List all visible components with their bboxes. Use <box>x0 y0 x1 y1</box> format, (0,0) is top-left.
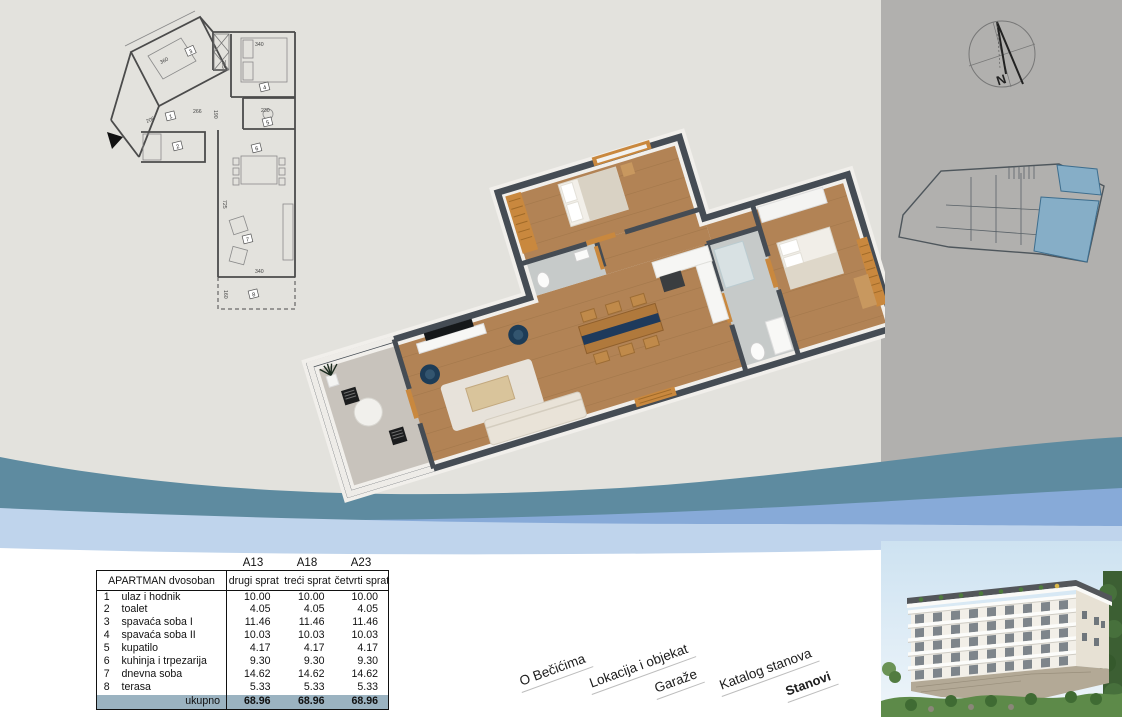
table-row: 1ulaz i hodnik10.0010.0010.00 <box>97 591 389 604</box>
dim-label: 190 <box>212 110 218 119</box>
row-number: 7 <box>97 669 117 682</box>
total-value: 68.96 <box>335 695 389 710</box>
row-number: 1 <box>97 591 117 604</box>
dim-label: 230 <box>261 108 270 114</box>
area-value: 4.17 <box>335 643 389 656</box>
room-name: kuhinja i trpezarija <box>117 656 227 669</box>
table-row: 5kupatilo4.174.174.17 <box>97 643 389 656</box>
area-value: 10.00 <box>335 591 389 604</box>
total-label: ukupno <box>117 695 227 710</box>
unit-id-row: A13 A18 A23 <box>226 557 388 569</box>
unit-id: A18 <box>280 557 334 569</box>
room-name: ulaz i hodnik <box>117 591 227 604</box>
table-total-row: ukupno68.9668.9668.96 <box>97 695 389 710</box>
area-value: 14.62 <box>335 669 389 682</box>
area-value: 4.17 <box>227 643 281 656</box>
area-value: 4.05 <box>227 604 281 617</box>
dim-label: 160 <box>222 290 228 299</box>
area-value: 10.03 <box>335 630 389 643</box>
room-name: spavaća soba I <box>117 617 227 630</box>
plan2d-bed1 <box>148 38 196 79</box>
table-row: 4spavaća soba II10.0310.0310.03 <box>97 630 389 643</box>
area-value: 4.05 <box>335 604 389 617</box>
area-value: 14.62 <box>227 669 281 682</box>
dim-label: 340 <box>255 269 264 275</box>
floor-label: drugi sprat <box>227 571 281 591</box>
table-row: 2toalet4.054.054.05 <box>97 604 389 617</box>
area-value: 5.33 <box>227 682 281 695</box>
entrance-arrow-icon <box>107 132 123 149</box>
dim-label: 285 <box>220 60 226 69</box>
room-tag: 7 <box>242 234 253 244</box>
table-header-row: APARTMAN dvosoban drugi sprat treći spra… <box>97 571 389 591</box>
area-table-body: 1ulaz i hodnik10.0010.0010.002toalet4.05… <box>97 591 389 710</box>
area-value: 9.30 <box>227 656 281 669</box>
floor-label: četvrti sprat <box>335 571 389 591</box>
row-number: 6 <box>97 656 117 669</box>
area-value: 5.33 <box>335 682 389 695</box>
table-row: 3spavaća soba I11.4611.4611.46 <box>97 617 389 630</box>
area-value: 4.05 <box>281 604 335 617</box>
floor-label: treći sprat <box>281 571 335 591</box>
compass: N <box>962 8 1044 98</box>
area-value: 10.00 <box>227 591 281 604</box>
room-name: terasa <box>117 682 227 695</box>
room-name: toalet <box>117 604 227 617</box>
total-value: 68.96 <box>227 695 281 710</box>
row-number: 2 <box>97 604 117 617</box>
area-value: 14.62 <box>281 669 335 682</box>
room-tag: 6 <box>251 143 262 153</box>
area-value: 9.30 <box>281 656 335 669</box>
area-value: 10.03 <box>227 630 281 643</box>
dim-label: 360 <box>159 56 170 65</box>
building-key-plan <box>891 157 1119 283</box>
area-value: 11.46 <box>335 617 389 630</box>
page: 360 340 285 266 190 206 230 725 340 160 … <box>0 0 1122 717</box>
row-number: 4 <box>97 630 117 643</box>
area-value: 11.46 <box>281 617 335 630</box>
table-row: 6kuhinja i trpezarija9.309.309.30 <box>97 656 389 669</box>
room-tag: 1 <box>165 111 176 121</box>
unit-id: A13 <box>226 557 280 569</box>
table-row: 8terasa5.335.335.33 <box>97 682 389 695</box>
total-value: 68.96 <box>281 695 335 710</box>
dim-label: 266 <box>193 109 202 115</box>
room-name: dnevna soba <box>117 669 227 682</box>
room-tag: 2 <box>172 141 183 151</box>
plan2d-bed2 <box>241 38 287 82</box>
area-value: 11.46 <box>227 617 281 630</box>
keyplan-stairs <box>1009 166 1034 179</box>
floor-plan-3d <box>270 118 885 543</box>
area-value: 10.00 <box>281 591 335 604</box>
apartment-area-table: A13 A18 A23 APARTMAN dvosoban drugi spra… <box>96 557 388 710</box>
row-number: 8 <box>97 682 117 695</box>
room-tag: 8 <box>248 289 259 299</box>
dim-label: 725 <box>221 200 227 209</box>
unit-id: A23 <box>334 557 388 569</box>
area-value: 5.33 <box>281 682 335 695</box>
row-number: 3 <box>97 617 117 630</box>
dim-label: 340 <box>255 42 264 48</box>
area-value: 9.30 <box>335 656 389 669</box>
table-header-label: APARTMAN dvosoban <box>97 571 227 591</box>
area-table: APARTMAN dvosoban drugi sprat treći spra… <box>96 570 389 710</box>
building-photo <box>881 541 1122 717</box>
room-name: kupatilo <box>117 643 227 656</box>
table-row: 7dnevna soba14.6214.6214.62 <box>97 669 389 682</box>
room-tag: 4 <box>259 82 270 92</box>
area-value: 10.03 <box>281 630 335 643</box>
room-name: spavaća soba II <box>117 630 227 643</box>
area-value: 4.17 <box>281 643 335 656</box>
row-number: 5 <box>97 643 117 656</box>
